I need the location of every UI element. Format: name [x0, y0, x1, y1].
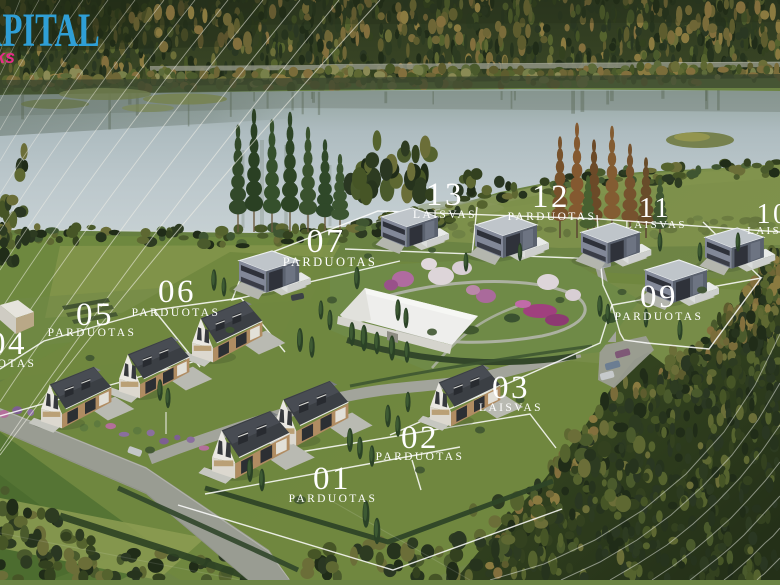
svg-text:04: 04 — [0, 326, 27, 362]
svg-text:03: 03 — [492, 370, 530, 406]
svg-text:PARDUOTAS: PARDUOTAS — [376, 451, 465, 463]
svg-text:PARDUOTAS: PARDUOTAS — [508, 211, 597, 223]
svg-text:06: 06 — [158, 274, 196, 310]
svg-text:PARDUOTAS: PARDUOTAS — [289, 493, 378, 505]
svg-text:01: 01 — [313, 461, 351, 497]
svg-text:PARDUOTAS: PARDUOTAS — [132, 307, 221, 319]
svg-text:12: 12 — [532, 179, 570, 215]
svg-text:LAISVAS: LAISVAS — [747, 225, 780, 237]
svg-text:09: 09 — [640, 279, 678, 315]
svg-text:LAISVAS: LAISVAS — [479, 402, 543, 414]
svg-text:PARDUOTAS: PARDUOTAS — [0, 358, 36, 370]
svg-text:ks: ks — [0, 47, 15, 67]
svg-text:LAISVAS: LAISVAS — [625, 219, 687, 231]
svg-text:13: 13 — [426, 177, 464, 213]
svg-text:PARDUOTAS: PARDUOTAS — [48, 327, 137, 339]
svg-text:PARDUOTAS: PARDUOTAS — [283, 255, 377, 269]
svg-text:PARDUOTAS: PARDUOTAS — [615, 311, 704, 323]
svg-text:LAISVAS: LAISVAS — [413, 209, 477, 221]
